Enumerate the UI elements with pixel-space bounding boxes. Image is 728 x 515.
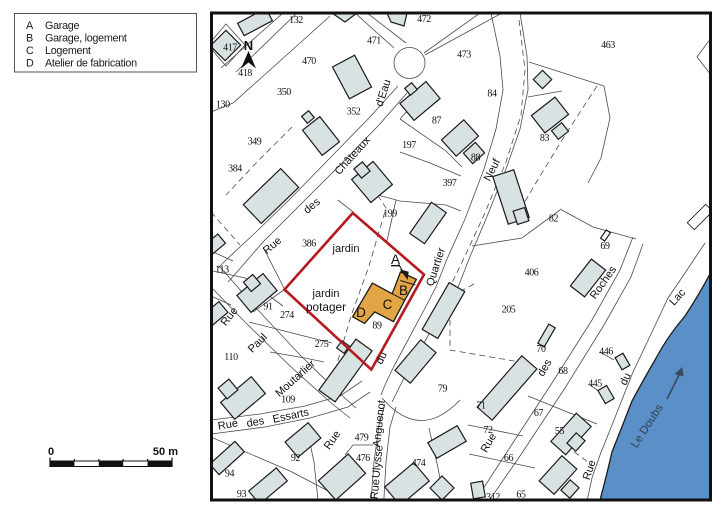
svg-text:A: A [391, 252, 400, 267]
svg-text:A: A [26, 20, 34, 32]
svg-text:470: 470 [302, 56, 316, 67]
svg-text:349: 349 [248, 137, 262, 148]
svg-text:69: 69 [600, 241, 610, 252]
svg-text:386: 386 [302, 239, 316, 250]
svg-text:68: 68 [558, 366, 568, 377]
svg-text:445: 445 [588, 379, 602, 390]
svg-text:67: 67 [534, 408, 544, 419]
svg-text:83: 83 [540, 133, 550, 144]
svg-text:446: 446 [599, 347, 613, 358]
svg-text:471: 471 [367, 36, 381, 47]
svg-text:110: 110 [224, 352, 238, 363]
svg-text:352: 352 [347, 107, 361, 118]
svg-text:463: 463 [601, 40, 615, 51]
svg-text:B: B [399, 283, 408, 298]
svg-text:C: C [26, 45, 34, 57]
svg-text:205: 205 [502, 305, 516, 316]
svg-text:Garage, logement: Garage, logement [45, 33, 127, 45]
svg-text:D: D [26, 58, 34, 70]
svg-text:474: 474 [412, 458, 426, 469]
svg-text:Rue: Rue [368, 479, 382, 500]
svg-text:197: 197 [402, 140, 416, 151]
svg-text:70: 70 [536, 344, 546, 355]
svg-text:89: 89 [372, 321, 382, 332]
svg-text:91: 91 [263, 302, 273, 313]
svg-text:132: 132 [289, 15, 303, 26]
svg-text:C: C [383, 297, 393, 312]
svg-text:N: N [244, 38, 253, 53]
svg-text:130: 130 [216, 100, 230, 111]
svg-text:Garage: Garage [45, 20, 80, 32]
svg-text:Logement: Logement [45, 45, 91, 57]
svg-text:113: 113 [215, 265, 229, 276]
svg-text:84: 84 [487, 89, 497, 100]
svg-text:Atelier de fabrication: Atelier de fabrication [45, 58, 137, 70]
svg-text:93: 93 [237, 489, 247, 500]
svg-text:0: 0 [48, 446, 54, 458]
svg-text:350: 350 [277, 87, 291, 98]
svg-text:275: 275 [315, 339, 329, 350]
svg-text:199: 199 [383, 209, 397, 220]
svg-text:potager: potager [306, 300, 346, 314]
svg-text:476: 476 [356, 453, 370, 464]
svg-text:417: 417 [223, 43, 237, 54]
svg-text:92: 92 [291, 453, 301, 464]
svg-text:79: 79 [438, 384, 448, 395]
svg-text:479: 479 [355, 433, 369, 444]
svg-text:274: 274 [280, 310, 294, 321]
svg-text:jardin: jardin [312, 288, 340, 300]
svg-text:406: 406 [525, 268, 539, 279]
svg-text:397: 397 [443, 178, 457, 189]
svg-text:88: 88 [471, 153, 481, 164]
svg-text:66: 66 [504, 453, 514, 464]
svg-text:71: 71 [476, 401, 486, 412]
svg-text:50 m: 50 m [153, 446, 178, 458]
svg-text:94: 94 [225, 469, 235, 480]
svg-text:jardin: jardin [332, 243, 360, 255]
svg-text:418: 418 [238, 68, 252, 79]
svg-text:87: 87 [432, 115, 442, 126]
svg-text:55: 55 [555, 426, 565, 437]
svg-text:384: 384 [228, 164, 242, 175]
svg-text:82: 82 [549, 214, 559, 225]
svg-text:B: B [26, 33, 33, 45]
svg-text:D: D [356, 305, 366, 320]
svg-text:473: 473 [457, 50, 471, 61]
svg-text:472: 472 [417, 14, 431, 25]
